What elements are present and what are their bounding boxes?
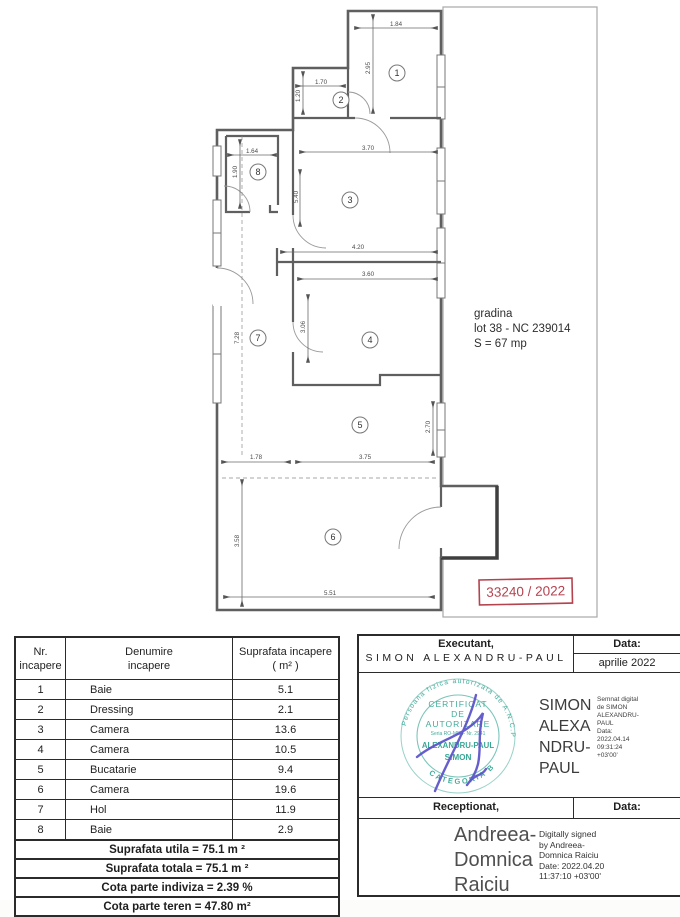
dim-label: 1.70 bbox=[315, 79, 328, 86]
svg-text:2: 2 bbox=[338, 95, 343, 105]
sig2-name-line: Andreea- bbox=[454, 823, 536, 848]
dim-label: 1.64 bbox=[246, 148, 259, 155]
svg-text:3: 3 bbox=[347, 195, 352, 205]
sig1-detail-line: 2022.04.14 bbox=[597, 736, 639, 744]
header-nr: Nr. incapere bbox=[16, 638, 66, 679]
cell-nr: 6 bbox=[16, 780, 66, 799]
cell-area: 13.6 bbox=[233, 720, 338, 739]
cell-name: Baie bbox=[66, 680, 233, 699]
cell-area: 19.6 bbox=[233, 780, 338, 799]
sig2-detail-line: Domnica Raiciu bbox=[539, 850, 604, 861]
table-row: 4 Camera 10.5 bbox=[16, 739, 338, 759]
table-row: 2 Dressing 2.1 bbox=[16, 699, 338, 719]
executant-panel: Executant, SIMON ALEXANDRU-PAUL Data: ap… bbox=[357, 634, 680, 897]
dim-label: 1.78 bbox=[250, 454, 263, 461]
dim-label: 7.28 bbox=[234, 331, 241, 344]
table-row: 5 Bucatarie 9.4 bbox=[16, 759, 338, 779]
sig1-detail-line: ALEXANDRU- bbox=[597, 712, 639, 720]
dim-label: 1.20 bbox=[295, 89, 302, 102]
summary-cota-teren: Cota parte teren = 47.80 m² bbox=[16, 896, 338, 915]
dim-label: 4.20 bbox=[352, 244, 365, 251]
sig1-name-line: PAUL bbox=[539, 758, 591, 779]
executant-name: SIMON ALEXANDRU-PAUL bbox=[359, 652, 573, 664]
sig2-name-line: Raiciu bbox=[454, 873, 536, 898]
dim-label: 3.70 bbox=[362, 145, 375, 152]
dim-label: 1.84 bbox=[390, 21, 403, 28]
registration-number: 33240 / 2022 bbox=[486, 583, 565, 600]
sig1-detail-line: de SIMON bbox=[597, 704, 639, 712]
room-bubble-7: 7 bbox=[250, 330, 266, 346]
cell-name: Dressing bbox=[66, 700, 233, 719]
room-bubble-2: 2 bbox=[333, 92, 349, 108]
table-row: 8 Baie 2.9 bbox=[16, 819, 338, 839]
dim-label: 3.06 bbox=[300, 320, 307, 333]
room-bubble-8: 8 bbox=[250, 164, 266, 180]
dim-label: 3.75 bbox=[359, 454, 372, 461]
cell-name: Camera bbox=[66, 740, 233, 759]
header-suprafata: Suprafata incapere ( m² ) bbox=[233, 638, 338, 679]
door-gap bbox=[213, 268, 222, 306]
executant-cell: Executant, SIMON ALEXANDRU-PAUL bbox=[359, 636, 574, 672]
header-suprafata-line2: ( m² ) bbox=[272, 659, 298, 673]
sig2-detail-line: Date: 2022.04.20 bbox=[539, 861, 604, 872]
dim-label: 3.60 bbox=[362, 271, 375, 278]
header-denumire-line1: Denumire bbox=[125, 645, 173, 659]
cell-name: Bucatarie bbox=[66, 760, 233, 779]
cell-area: 2.9 bbox=[233, 820, 338, 839]
cell-nr: 5 bbox=[16, 760, 66, 779]
sig2-detail-line: Digitally signed bbox=[539, 829, 604, 840]
cell-area: 10.5 bbox=[233, 740, 338, 759]
sig2-detail-line: by Andreea- bbox=[539, 840, 604, 851]
digital-signature-name: SIMON ALEXA NDRU- PAUL bbox=[539, 695, 591, 779]
dim-label: 3.58 bbox=[234, 534, 241, 547]
sig2-name-line: Domnica bbox=[454, 848, 536, 873]
sig1-detail-line: PAUL bbox=[597, 720, 639, 728]
cell-area: 2.1 bbox=[233, 700, 338, 719]
receptionat-signature-cell: Andreea- Domnica Raiciu Digitally signed… bbox=[359, 818, 680, 895]
dim-label: 5.40 bbox=[293, 190, 300, 203]
header-nr-line1: Nr. bbox=[33, 645, 47, 659]
header-denumire-line2: incapere bbox=[128, 659, 170, 673]
garden-line1: gradina bbox=[474, 308, 513, 320]
scanned-document-page: 1.84 1.70 1.64 3.70 4.20 3.60 1.78 3.75 … bbox=[0, 0, 680, 900]
room-bubble-4: 4 bbox=[362, 332, 378, 348]
receptionat-signature-details: Digitally signed by Andreea- Domnica Rai… bbox=[539, 829, 604, 882]
table-row: 3 Camera 13.6 bbox=[16, 719, 338, 739]
dim-label: 2.70 bbox=[425, 420, 432, 433]
svg-text:1: 1 bbox=[394, 68, 399, 78]
cell-name: Camera bbox=[66, 780, 233, 799]
svg-text:6: 6 bbox=[330, 532, 335, 542]
room-bubble-3: 3 bbox=[342, 192, 358, 208]
executant-label: Executant, bbox=[359, 638, 573, 650]
sig2-detail-line: 11:37:10 +03'00' bbox=[539, 871, 604, 882]
garden-line3: S = 67 mp bbox=[474, 338, 527, 350]
room-bubble-1: 1 bbox=[389, 65, 405, 81]
cell-name: Baie bbox=[66, 820, 233, 839]
sig1-name-line: NDRU- bbox=[539, 737, 591, 758]
summary-suprafata-utila: Suprafata utila = 75.1 m ² bbox=[16, 839, 338, 858]
certification-stamp: Persoana fizica autorizata de A.N.C.P.I.… bbox=[383, 673, 533, 799]
sig1-detail-line: +03'00' bbox=[597, 752, 639, 760]
cell-area: 9.4 bbox=[233, 760, 338, 779]
stamp-line1: CERTIFICAT bbox=[428, 699, 487, 709]
table-row: 1 Baie 5.1 bbox=[16, 679, 338, 699]
cell-nr: 7 bbox=[16, 800, 66, 819]
cell-nr: 4 bbox=[16, 740, 66, 759]
registration-stamp: 33240 / 2022 bbox=[479, 578, 573, 605]
cell-nr: 3 bbox=[16, 720, 66, 739]
cell-area: 11.9 bbox=[233, 800, 338, 819]
summary-suprafata-totala: Suprafata totala = 75.1 m ² bbox=[16, 858, 338, 877]
stamp-line2: DE bbox=[451, 709, 465, 719]
table-row: 6 Camera 19.6 bbox=[16, 779, 338, 799]
sig1-detail-line: Semnat digital bbox=[597, 696, 639, 704]
cell-name: Hol bbox=[66, 800, 233, 819]
sig1-name-line: ALEXA bbox=[539, 716, 591, 737]
dim-label: 5.51 bbox=[324, 590, 337, 597]
garden-line2: lot 38 - NC 239014 bbox=[474, 323, 571, 335]
header-suprafata-line1: Suprafata incapere bbox=[239, 645, 332, 659]
data-cell: Data: aprilie 2022 bbox=[574, 636, 680, 672]
cell-nr: 8 bbox=[16, 820, 66, 839]
floor-plan-drawing: 1.84 1.70 1.64 3.70 4.20 3.60 1.78 3.75 … bbox=[0, 0, 680, 630]
dim-label: 1.90 bbox=[232, 165, 239, 178]
receptionat-header-row: Receptionat, Data: bbox=[359, 797, 680, 818]
summary-cota-indiviza: Cota parte indiviza = 2.39 % bbox=[16, 877, 338, 896]
cell-name: Camera bbox=[66, 720, 233, 739]
sig1-name-line: SIMON bbox=[539, 695, 591, 716]
executant-signature-cell: Persoana fizica autorizata de A.N.C.P.I.… bbox=[359, 672, 680, 797]
data-label: Data: bbox=[574, 636, 680, 654]
room-bubble-6: 6 bbox=[325, 529, 341, 545]
cell-area: 5.1 bbox=[233, 680, 338, 699]
table-row: 7 Hol 11.9 bbox=[16, 799, 338, 819]
table-header-row: Nr. incapere Denumire incapere Suprafata… bbox=[16, 638, 338, 679]
digital-signature-details: Semnat digital de SIMON ALEXANDRU- PAUL … bbox=[597, 696, 639, 760]
cell-nr: 1 bbox=[16, 680, 66, 699]
cell-nr: 2 bbox=[16, 700, 66, 719]
executant-header-row: Executant, SIMON ALEXANDRU-PAUL Data: ap… bbox=[359, 636, 680, 672]
svg-text:5: 5 bbox=[357, 420, 362, 430]
sig1-detail-line: Data: bbox=[597, 728, 639, 736]
svg-text:8: 8 bbox=[255, 167, 260, 177]
garden-annotation: gradina lot 38 - NC 239014 S = 67 mp bbox=[474, 308, 571, 350]
sig1-detail-line: 09:31:24 bbox=[597, 744, 639, 752]
rooms-area-table: Nr. incapere Denumire incapere Suprafata… bbox=[14, 636, 340, 917]
header-nr-line2: incapere bbox=[19, 659, 61, 673]
data-value: aprilie 2022 bbox=[574, 654, 680, 672]
room-bubble-5: 5 bbox=[352, 417, 368, 433]
receptionat-signature-name: Andreea- Domnica Raiciu bbox=[454, 823, 536, 898]
svg-text:4: 4 bbox=[367, 335, 372, 345]
receptionat-label: Receptionat, bbox=[359, 798, 574, 818]
building-outline bbox=[217, 11, 497, 610]
data-label2: Data: bbox=[574, 798, 680, 818]
header-denumire: Denumire incapere bbox=[66, 638, 233, 679]
svg-text:7: 7 bbox=[255, 333, 260, 343]
dim-label: 2.95 bbox=[365, 61, 372, 74]
